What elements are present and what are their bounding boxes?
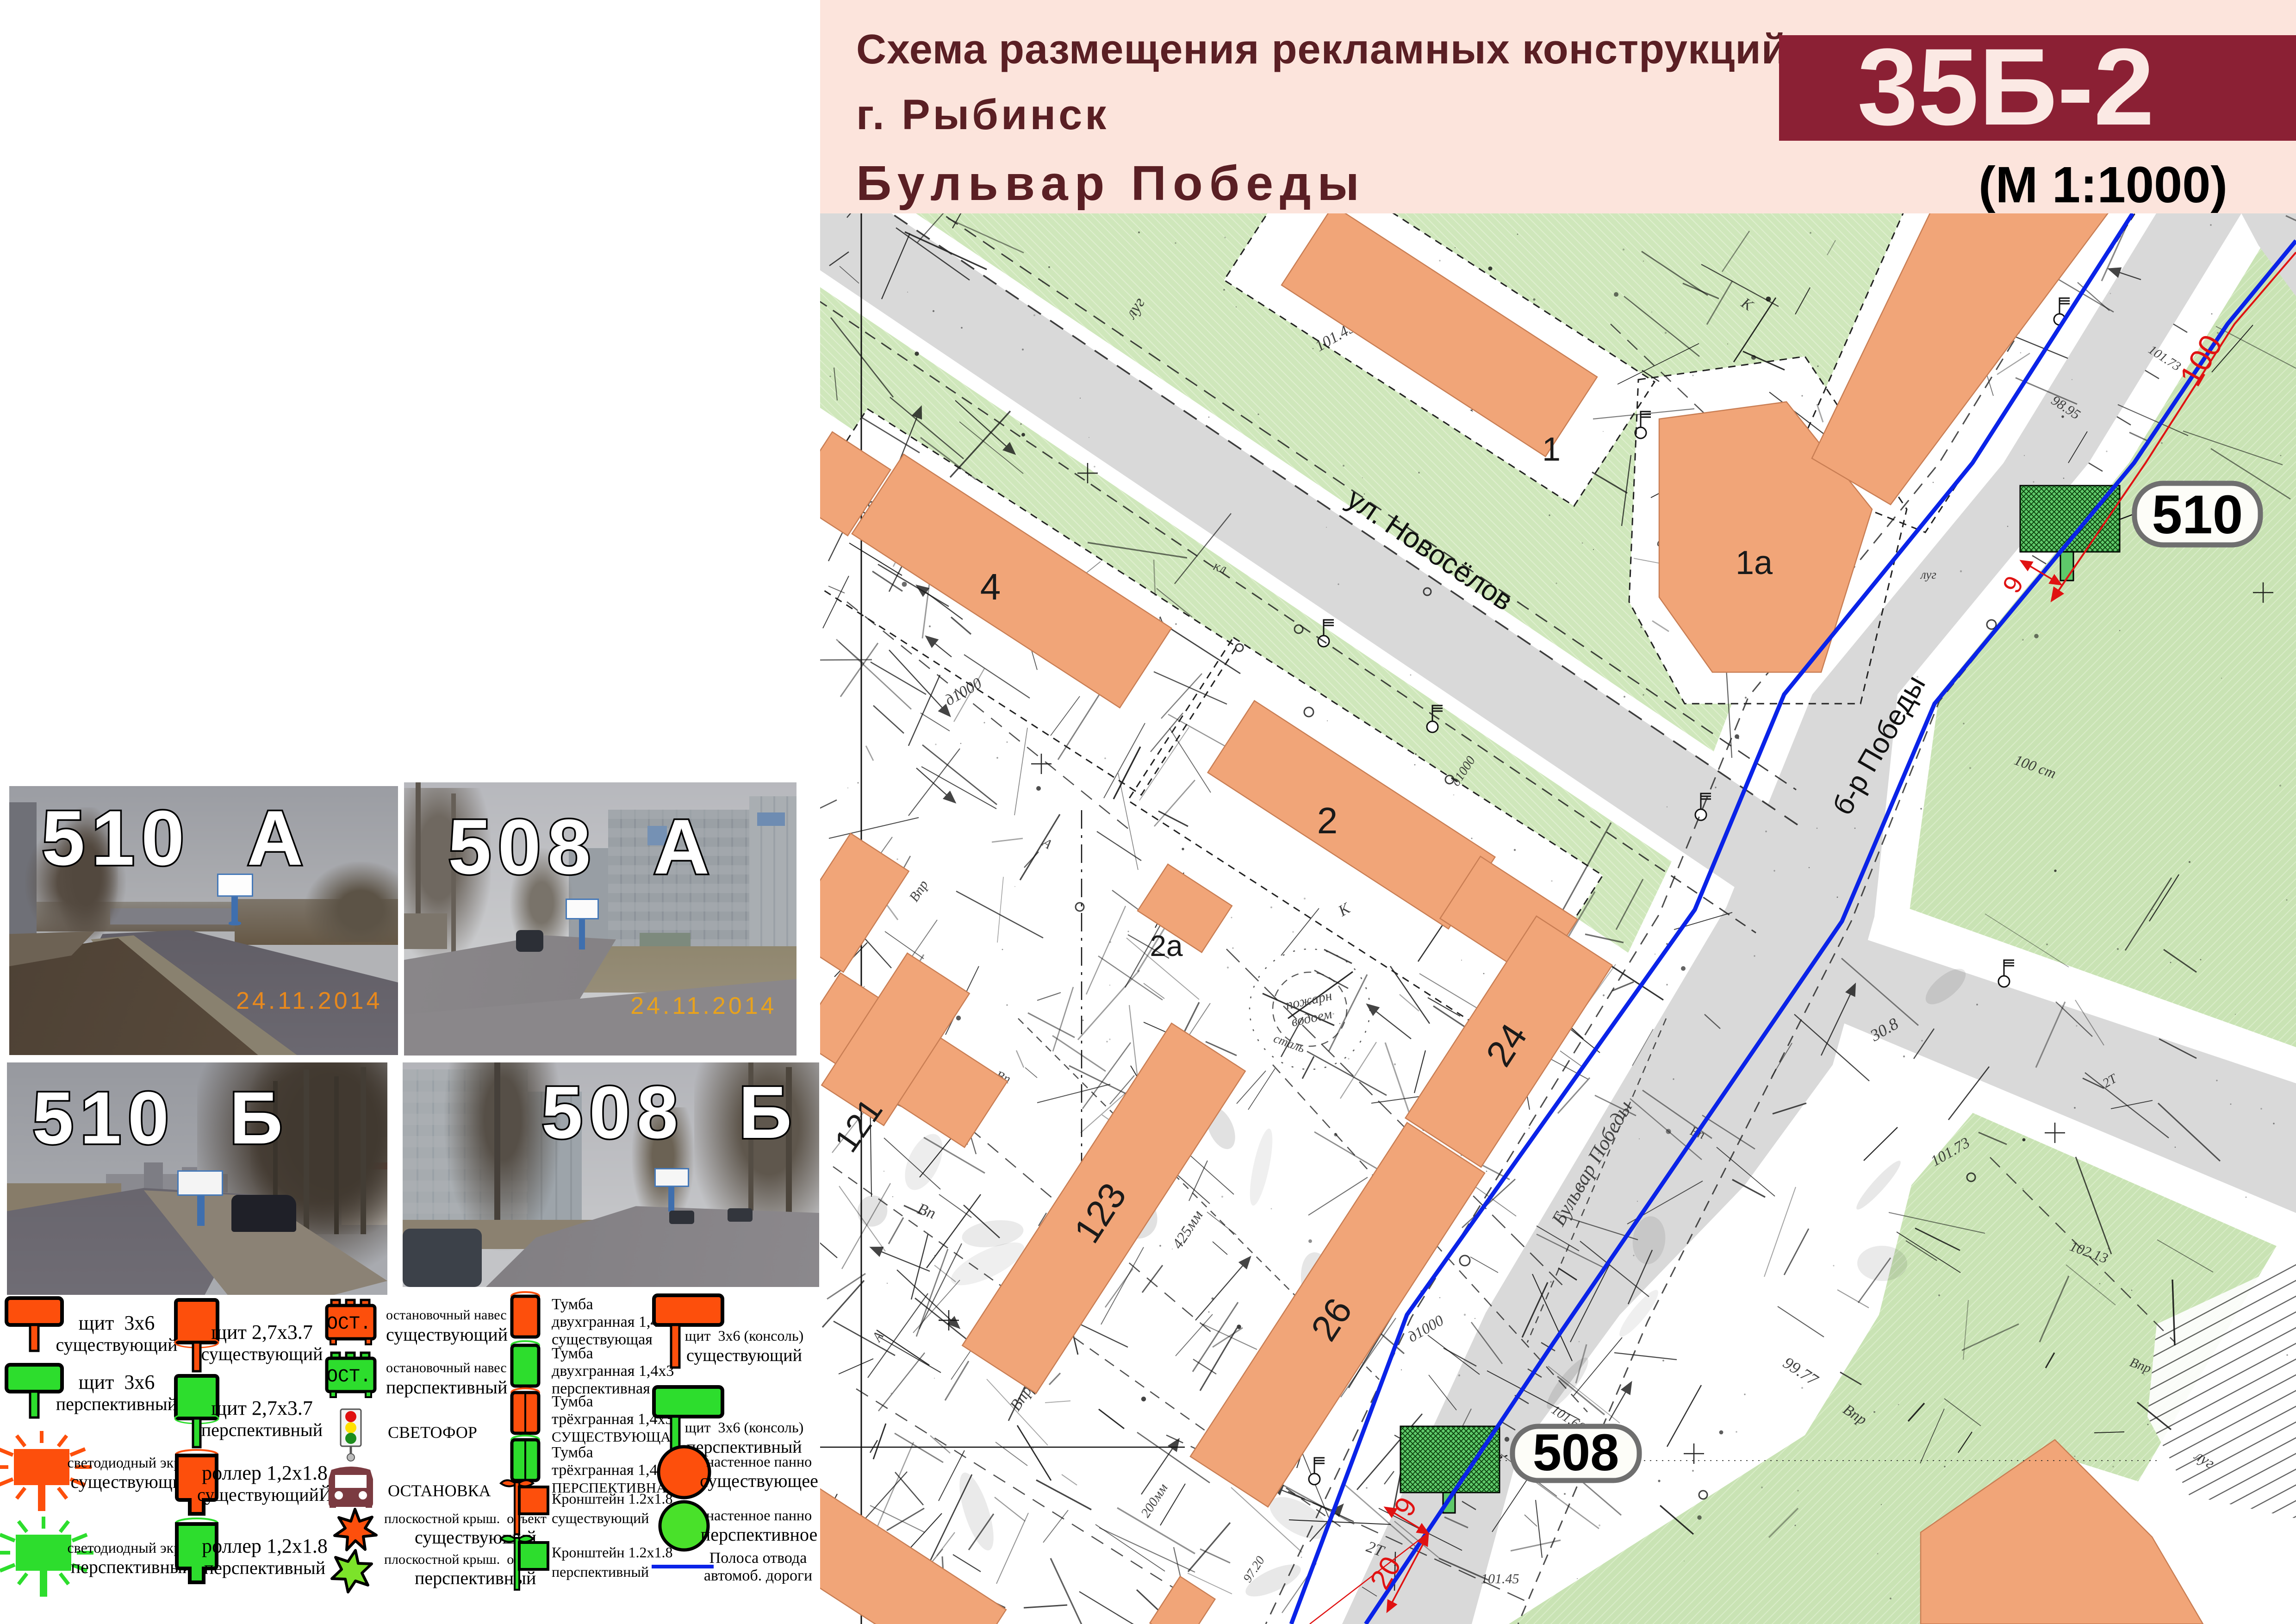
svg-text:настенное панно: настенное панно: [706, 1507, 812, 1524]
svg-text:СВЕТОФОР: СВЕТОФОР: [388, 1423, 477, 1442]
svg-text:2: 2: [1317, 800, 1338, 841]
svg-text:двухгранная 1,4х3: двухгранная 1,4х3: [552, 1362, 674, 1380]
svg-text:Тумба: Тумба: [552, 1393, 593, 1410]
svg-text:роллер 1,2х1.8: роллер 1,2х1.8: [202, 1535, 328, 1557]
svg-text:автомоб. дороги: автомоб. дороги: [704, 1567, 812, 1584]
svg-text:Кронштейн 1.2х1.8: Кронштейн 1.2х1.8: [552, 1490, 673, 1507]
svg-text:существующий: существующий: [201, 1343, 323, 1364]
svg-text:существующий: существующий: [686, 1346, 802, 1365]
svg-text:1: 1: [1542, 431, 1561, 468]
svg-text:щит 2,7х3.7: щит 2,7х3.7: [211, 1321, 313, 1343]
svg-text:щит 3х6: щит 3х6: [79, 1371, 155, 1393]
svg-text:щит 3х6 (консоль): щит 3х6 (консоль): [685, 1419, 803, 1436]
svg-text:4: 4: [980, 566, 1001, 607]
svg-text:перспективное: перспективное: [701, 1524, 817, 1545]
svg-text:щит 2,7х3.7: щит 2,7х3.7: [211, 1397, 313, 1419]
svg-text:роллер 1,2х1.8: роллер 1,2х1.8: [202, 1462, 328, 1484]
svg-text:перспективный: перспективный: [204, 1557, 325, 1578]
svg-text:щит 3х6 (консоль): щит 3х6 (консоль): [685, 1327, 803, 1344]
svg-text:перспективный: перспективный: [201, 1419, 323, 1440]
svg-text:перспективный: перспективный: [71, 1556, 192, 1577]
svg-text:луг: луг: [1920, 568, 1936, 581]
svg-text:существующий: существующий: [56, 1334, 177, 1355]
svg-text:ОСТАНОВКА: ОСТАНОВКА: [388, 1481, 491, 1500]
svg-text:существующий: существующий: [552, 1510, 649, 1526]
svg-text:Полоса отвода: Полоса отвода: [709, 1549, 807, 1567]
svg-text:остановочный навес: остановочный навес: [386, 1307, 507, 1323]
svg-text:перспективный: перспективный: [56, 1393, 177, 1414]
svg-text:существующий: существующий: [70, 1471, 192, 1492]
svg-text:Тумба: Тумба: [552, 1345, 593, 1362]
svg-text:перспективный: перспективный: [552, 1563, 649, 1580]
svg-text:510: 510: [2152, 484, 2243, 545]
svg-text:настенное панно: настенное панно: [706, 1453, 812, 1470]
svg-text:ОСТ.: ОСТ.: [327, 1367, 371, 1387]
svg-text:ОСТ.: ОСТ.: [327, 1314, 371, 1335]
svg-text:щит 3х6: щит 3х6: [79, 1312, 155, 1334]
svg-text:101.45: 101.45: [1481, 1571, 1519, 1587]
svg-text:остановочный навес: остановочный навес: [386, 1360, 507, 1375]
svg-text:существующийЙ: существующийЙ: [197, 1484, 332, 1505]
svg-text:1а: 1а: [1736, 544, 1773, 581]
svg-text:508: 508: [1533, 1424, 1619, 1481]
svg-text:существующий: существующий: [386, 1324, 508, 1345]
svg-text:перспективный: перспективный: [386, 1377, 507, 1398]
svg-text:существующее: существующее: [700, 1470, 818, 1491]
svg-text:трёхгранная 1,4х3: трёхгранная 1,4х3: [552, 1462, 673, 1479]
svg-text:Тумба: Тумба: [552, 1444, 593, 1461]
svg-text:СУЩЕСТВУЮЩАЯ: СУЩЕСТВУЮЩАЯ: [552, 1429, 680, 1445]
svg-text:2а: 2а: [1150, 929, 1183, 962]
svg-text:Тумба: Тумба: [552, 1296, 593, 1313]
svg-text:Кронштейн 1.2х1.8: Кронштейн 1.2х1.8: [552, 1544, 673, 1561]
